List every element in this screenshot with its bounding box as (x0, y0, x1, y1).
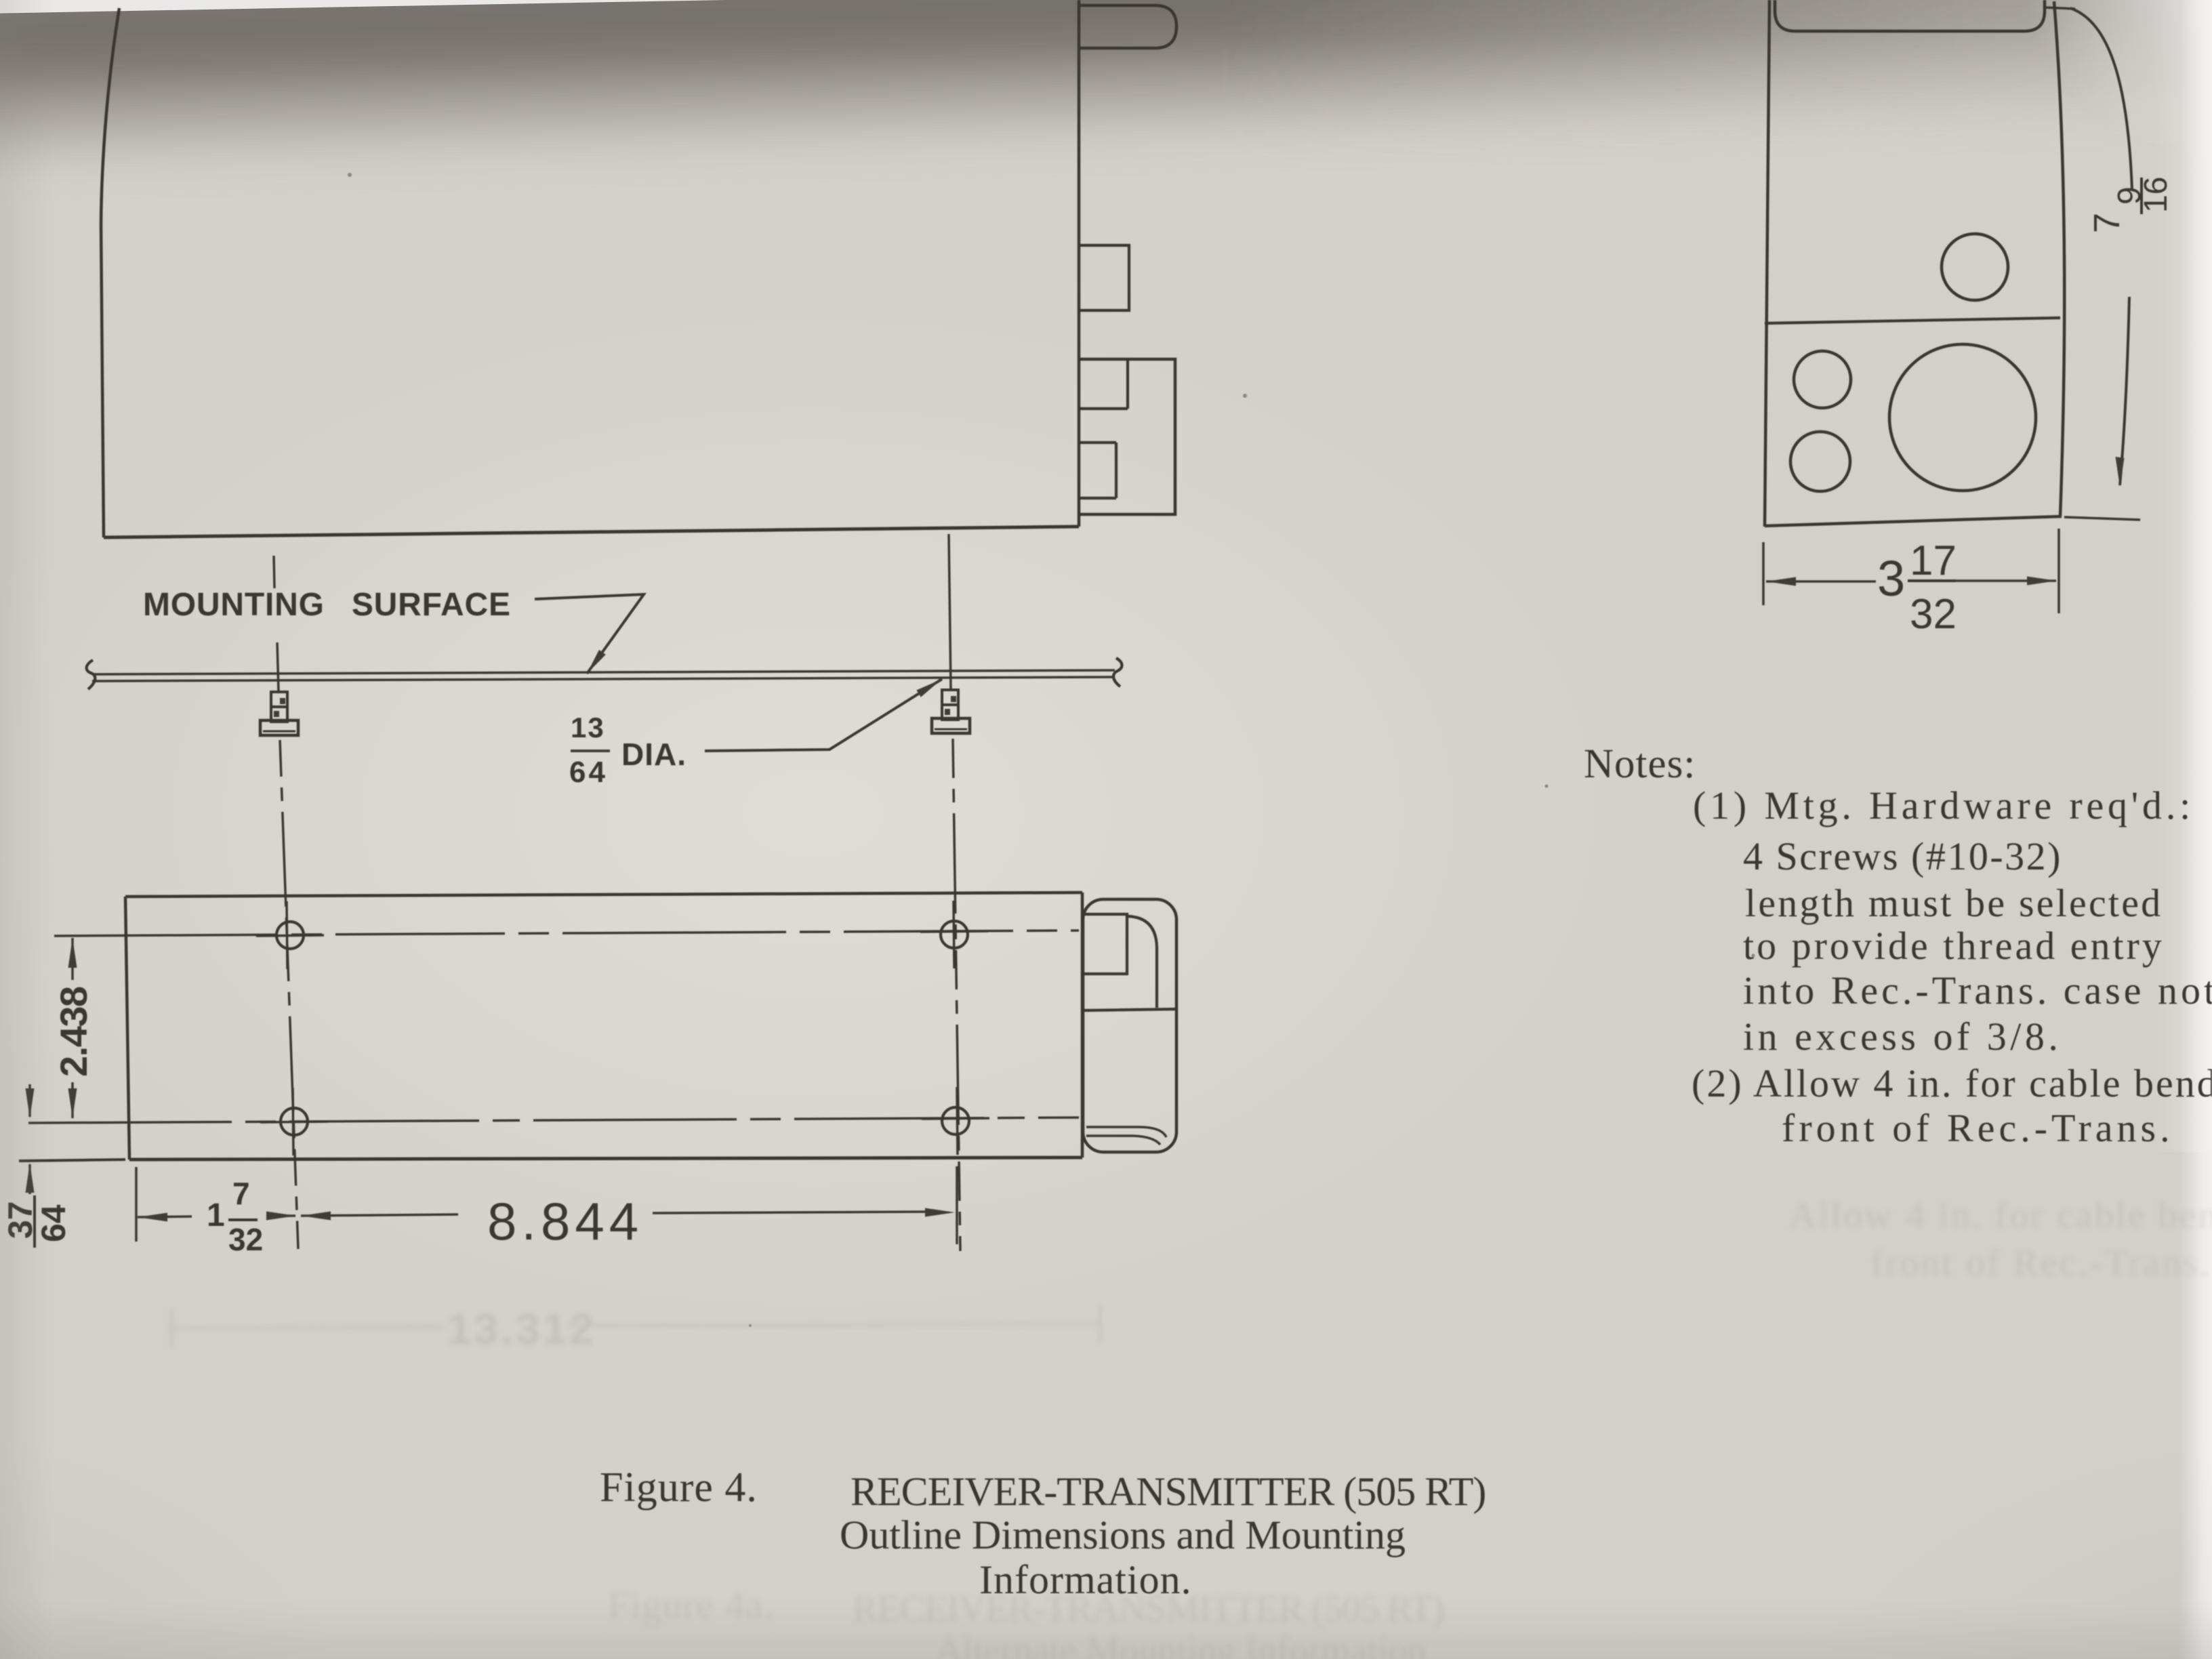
svg-text:16: 16 (2138, 177, 2174, 213)
svg-text:1: 1 (207, 1197, 225, 1233)
svg-text:7: 7 (2087, 213, 2127, 233)
svg-text:RECEIVER-TRANSMITTER (505 RT): RECEIVER-TRANSMITTER (505 RT) (851, 1469, 1486, 1514)
svg-text:7: 7 (232, 1176, 250, 1211)
svg-text:32: 32 (228, 1222, 263, 1257)
svg-text:Outline Dimensions and Mountin: Outline Dimensions and Mounting (840, 1513, 1406, 1557)
svg-text:(1) Mtg. Hardware req'd.:: (1) Mtg. Hardware req'd.: (1693, 783, 2194, 827)
svg-text:MOUNTING SURFACE: MOUNTING SURFACE (143, 587, 511, 623)
svg-text:32: 32 (1910, 591, 1957, 638)
svg-text:length must be selected: length must be selected (1745, 881, 2163, 925)
svg-text:4 Screws (#10-32): 4 Screws (#10-32) (1743, 834, 2062, 878)
svg-text:Figure 4.: Figure 4. (600, 1465, 758, 1511)
svg-text:17: 17 (1910, 537, 1957, 584)
svg-text:(2) Allow 4 in. for cable bend: (2) Allow 4 in. for cable bend (1692, 1061, 2212, 1105)
svg-text:13: 13 (571, 712, 605, 743)
svg-text:to provide thread entry: to provide thread entry (1743, 924, 2165, 968)
svg-text:in excess of 3/8.: in excess of 3/8. (1743, 1015, 2062, 1059)
svg-text:front of Rec.-Trans.: front of Rec.-Trans. (1870, 1242, 2211, 1284)
svg-text:64: 64 (569, 756, 608, 789)
svg-text:13.312: 13.312 (447, 1305, 596, 1353)
svg-text:2.438: 2.438 (52, 987, 95, 1077)
svg-text:3: 3 (1877, 550, 1905, 607)
svg-text:Allow 4 in. for cable bend: Allow 4 in. for cable bend (1789, 1195, 2212, 1237)
svg-text:front of Rec.-Trans.: front of Rec.-Trans. (1782, 1106, 2174, 1150)
svg-text:8.844: 8.844 (487, 1191, 643, 1251)
svg-text:DIA.: DIA. (621, 737, 687, 772)
svg-text:Notes:: Notes: (1584, 741, 1696, 787)
svg-text:into Rec.-Trans. case not: into Rec.-Trans. case not (1743, 968, 2212, 1012)
